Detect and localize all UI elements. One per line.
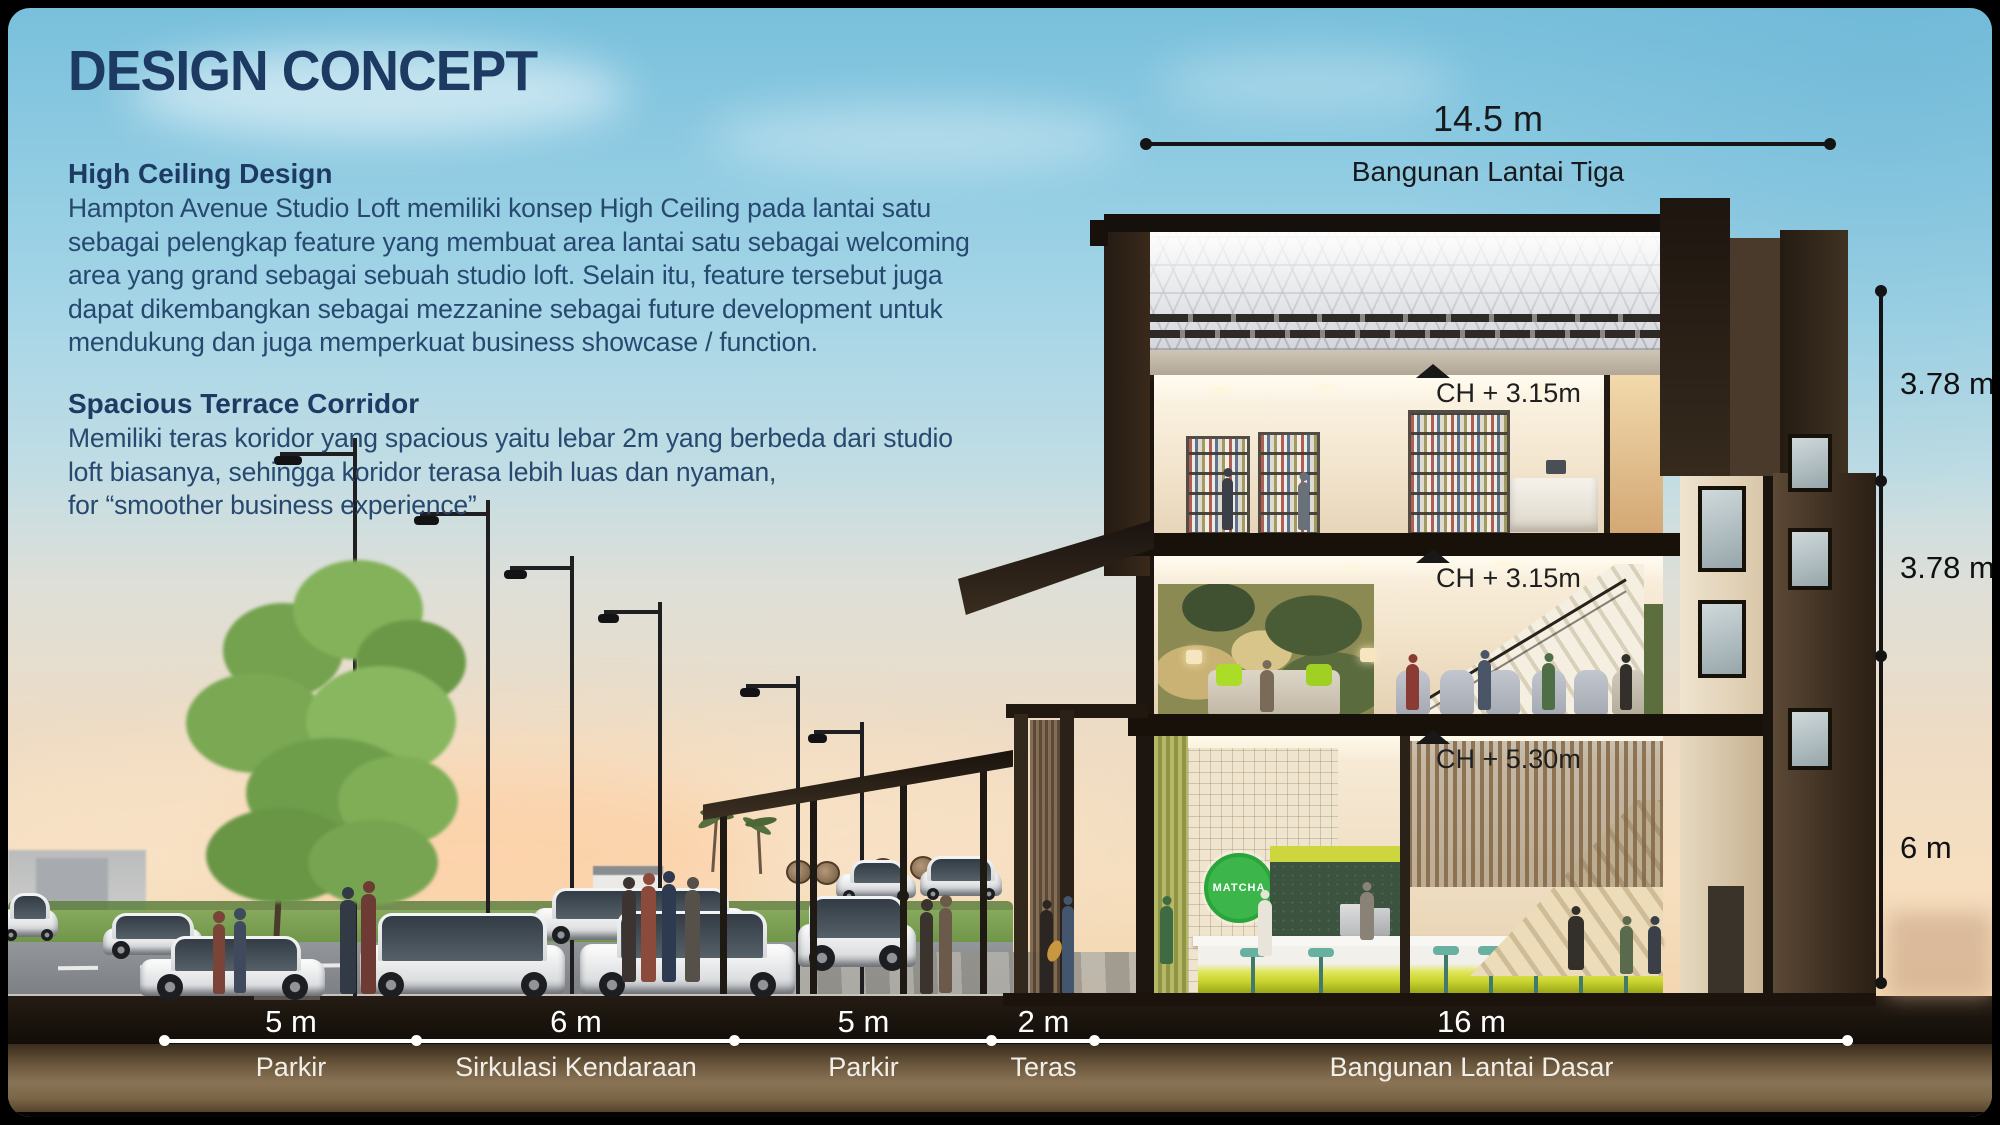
ceiling-light <box>1203 384 1237 396</box>
person-figure <box>1298 482 1309 530</box>
matcha-logo-text: MATCHA <box>1213 882 1266 894</box>
car <box>920 856 1002 900</box>
person-figure <box>920 912 933 994</box>
right-dimension-value: 3.78 m <box>1900 550 1992 586</box>
street-lamp-head <box>598 614 619 623</box>
segment-value: 2 m <box>992 1004 1095 1040</box>
sofa-cushion <box>1216 664 1242 686</box>
ceiling-light <box>1208 566 1240 577</box>
segment-value: 6 m <box>417 1004 735 1040</box>
canopy-post <box>810 790 817 994</box>
lounge-chair <box>1486 670 1520 714</box>
segment-value: 5 m <box>165 1004 417 1040</box>
ceiling-height-label: CH + 3.15m <box>1436 563 1581 594</box>
cloud <box>708 103 1128 173</box>
floor-slab <box>1128 714 1776 736</box>
floor-lamp <box>1186 650 1202 664</box>
segment-label: Bangunan Lantai Dasar <box>1095 1052 1848 1083</box>
street-lamp-head <box>740 688 760 697</box>
ceiling-light <box>1308 381 1342 393</box>
person-figure <box>1360 892 1374 940</box>
window <box>1788 708 1832 770</box>
level-marker-icon <box>1416 549 1450 563</box>
bottom-bar <box>8 1112 1992 1117</box>
segment-label: Parkir <box>165 1052 417 1083</box>
floor-slab <box>1128 533 1776 556</box>
right-dimension-value: 6 m <box>1900 830 1952 866</box>
slide-frame: MATCHA CH + 3.15m CH + <box>0 0 2000 1125</box>
sofa-cushion <box>1306 664 1332 686</box>
roof-top-bar <box>1104 214 1676 232</box>
car <box>140 936 325 1000</box>
right-haze-trees <box>1888 913 1992 997</box>
parapet-left-wall <box>1104 220 1150 576</box>
street-lamp-head <box>504 570 527 579</box>
dimension-dot <box>1875 285 1887 297</box>
person-figure <box>1260 670 1274 712</box>
level-marker-icon <box>1416 364 1450 378</box>
window <box>1788 528 1832 590</box>
section-body: Memiliki teras koridor yang spacious yai… <box>68 422 1088 523</box>
person-figure <box>1406 664 1419 710</box>
person-figure <box>1258 900 1272 956</box>
person-figure <box>234 921 246 993</box>
person-figure <box>1620 926 1633 974</box>
segment-value: 5 m <box>735 1004 992 1040</box>
car <box>360 913 565 998</box>
person-figure <box>1648 926 1661 974</box>
window <box>1788 434 1832 492</box>
person-figure <box>361 894 376 994</box>
parapet-block <box>1730 238 1780 476</box>
ceiling-light <box>1338 562 1370 573</box>
dimension-dot <box>1824 138 1836 150</box>
desk-monitor <box>1546 460 1566 474</box>
person-figure <box>685 890 700 982</box>
ceiling-height-label: CH + 5.30m <box>1436 744 1581 775</box>
bar-stool <box>1433 946 1459 993</box>
segment-label: Teras <box>992 1052 1095 1083</box>
right-dimension-value: 3.78 m <box>1900 366 1992 402</box>
person-figure <box>213 924 225 994</box>
lounge-chair <box>1440 670 1474 714</box>
top-dimension-line <box>1146 142 1830 146</box>
floor2-green-wall <box>1644 604 1663 714</box>
person-figure <box>1160 906 1173 964</box>
canopy-post <box>720 804 727 994</box>
dimension-dot <box>1140 138 1152 150</box>
menu-band-yellow <box>1270 846 1406 862</box>
section-heading: Spacious Terrace Corridor <box>68 388 419 420</box>
ground-column <box>1400 736 1410 993</box>
segment-label: Parkir <box>735 1052 992 1083</box>
segment-value: 16 m <box>1095 1004 1848 1040</box>
section-body: Hampton Avenue Studio Loft memiliki kons… <box>68 192 1088 360</box>
window <box>1698 486 1746 572</box>
person-figure <box>1478 660 1491 710</box>
person-figure <box>1062 906 1074 994</box>
roof-purlins <box>1150 314 1663 322</box>
person-figure <box>1620 664 1632 710</box>
segment-label: Sirkulasi Kendaraan <box>417 1052 735 1083</box>
person-figure <box>939 908 952 993</box>
roof-purlins <box>1150 330 1663 338</box>
person-figure <box>340 900 356 994</box>
top-dimension-label: Bangunan Lantai Tiga <box>1308 156 1668 188</box>
page-title: DESIGN CONCEPT <box>68 38 537 104</box>
canopy-post <box>900 776 907 994</box>
library-desk <box>1510 478 1598 532</box>
bookshelf <box>1186 436 1250 538</box>
person-figure <box>1542 663 1555 710</box>
car <box>8 893 58 941</box>
top-dimension-value: 14.5 m <box>1308 98 1668 140</box>
person-figure <box>1222 478 1233 530</box>
person-figure <box>662 884 676 982</box>
person-figure <box>641 886 656 982</box>
floor3-warm-wall <box>1610 375 1663 533</box>
terrace-column <box>1014 714 1028 994</box>
tree-canopy <box>308 820 438 905</box>
right-dimension-line <box>1879 291 1883 983</box>
parapet-block <box>1660 198 1730 476</box>
level-marker-icon <box>1416 730 1450 744</box>
dimension-dot <box>1875 475 1887 487</box>
dimension-dot <box>1875 650 1887 662</box>
bar-stool <box>1308 948 1334 993</box>
right-wing-door <box>1708 886 1744 993</box>
section-heading: High Ceiling Design <box>68 158 332 190</box>
dimension-dot <box>1875 977 1887 989</box>
canopy-post <box>980 762 987 994</box>
window <box>1698 600 1746 678</box>
bookshelf <box>1408 410 1510 538</box>
ceiling-height-label: CH + 3.15m <box>1436 378 1581 409</box>
street-lamp-head <box>808 734 827 743</box>
person-figure <box>1568 916 1584 970</box>
lounge-chair <box>1574 670 1608 714</box>
slide-background: MATCHA CH + 3.15m CH + <box>8 8 1992 1117</box>
person-figure <box>622 890 636 982</box>
bookshelf <box>1258 432 1320 538</box>
floor-lamp <box>1360 648 1376 662</box>
